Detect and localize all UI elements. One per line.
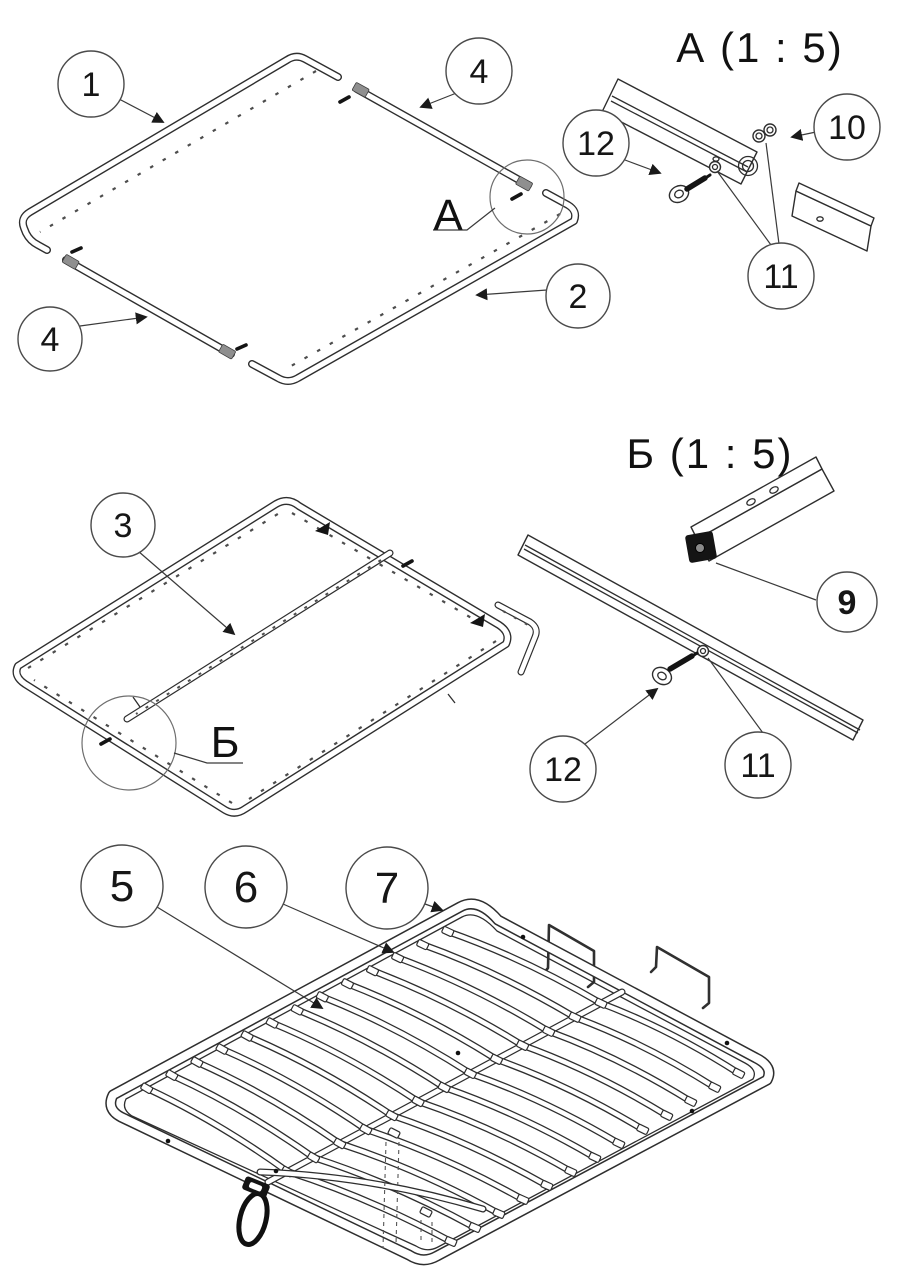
cross-tube-part4-top xyxy=(340,82,533,199)
detail-a-title: А (1 : 5) xyxy=(676,24,843,71)
washer xyxy=(710,162,721,173)
assembly-instruction-page: А А (1 : 5) xyxy=(0,0,900,1280)
callout-balloon-6: 6 xyxy=(205,846,287,928)
detail-b-view: Б (1 : 5) xyxy=(498,430,863,740)
svg-text:7: 7 xyxy=(375,864,399,913)
svg-text:12: 12 xyxy=(577,125,615,163)
ref-dot xyxy=(456,1051,461,1056)
callout-balloon-12-bottom: 12 xyxy=(530,736,596,802)
slat-cap xyxy=(612,1138,625,1149)
callout-balloon-4-bottom: 4 xyxy=(18,307,82,371)
slatted-base xyxy=(111,904,769,1260)
callout-balloon-3: 3 xyxy=(91,493,155,557)
leader-1 xyxy=(119,99,163,122)
slat-cap xyxy=(266,1017,279,1028)
svg-text:9: 9 xyxy=(838,584,857,622)
middle-frame-assembled: Б xyxy=(17,501,508,813)
grub-screw xyxy=(403,561,412,566)
callout-balloon-12-top: 12 xyxy=(563,110,629,176)
callout-balloon-9: 9 xyxy=(817,572,877,632)
slat-cap xyxy=(540,1180,553,1191)
leader-12b xyxy=(585,689,657,744)
svg-text:3: 3 xyxy=(114,507,133,545)
detail-b-circle xyxy=(82,696,176,790)
detail-a-marker-label: А xyxy=(433,191,463,240)
svg-text:11: 11 xyxy=(740,747,775,785)
leader-9 xyxy=(716,563,816,600)
joint-mark xyxy=(133,697,140,707)
washer xyxy=(698,646,709,657)
leader-4b xyxy=(80,317,146,326)
callout-balloon-11-top: 11 xyxy=(748,243,814,309)
svg-text:1: 1 xyxy=(82,66,101,104)
ref-dot xyxy=(274,1169,279,1174)
slat-cap xyxy=(416,939,429,950)
grub-screw xyxy=(340,97,349,102)
svg-text:6: 6 xyxy=(234,863,258,912)
slat-cap xyxy=(636,1124,649,1135)
svg-text:5: 5 xyxy=(110,862,134,911)
slat-cap xyxy=(588,1152,601,1163)
frame-loop xyxy=(17,501,508,813)
svg-text:4: 4 xyxy=(470,53,489,91)
slat-cap xyxy=(316,991,329,1002)
leader-4a xyxy=(421,92,459,107)
svg-text:10: 10 xyxy=(828,109,866,147)
leader-7 xyxy=(425,904,442,910)
slat-cap xyxy=(391,952,404,963)
leader-10 xyxy=(792,132,816,137)
slat-cap xyxy=(564,1166,577,1177)
svg-text:2: 2 xyxy=(569,278,588,316)
detail-b-title: Б (1 : 5) xyxy=(627,430,794,477)
bolt xyxy=(649,653,697,688)
slat-cap xyxy=(140,1083,153,1094)
slat-cap xyxy=(732,1068,745,1079)
cross-tube-part4-bottom xyxy=(62,248,246,359)
slat-cap xyxy=(684,1096,697,1107)
bolt xyxy=(666,175,710,206)
svg-text:4: 4 xyxy=(41,321,60,359)
cable-tie xyxy=(234,1176,272,1248)
ref-dot xyxy=(690,1109,695,1114)
slat-cap xyxy=(516,1194,529,1205)
grub-screw xyxy=(237,345,246,349)
slat-cap xyxy=(441,926,454,937)
slat-cap xyxy=(708,1082,721,1093)
callout-balloon-2: 2 xyxy=(546,264,610,328)
washer-nut-pair xyxy=(753,124,776,142)
mattress-hook xyxy=(651,947,709,1008)
detail-b-marker-label: Б xyxy=(211,718,240,767)
svg-text:11: 11 xyxy=(763,258,798,296)
leader-2 xyxy=(477,290,547,295)
slat-cap xyxy=(660,1110,673,1121)
slat-cap xyxy=(291,1004,304,1015)
svg-text:12: 12 xyxy=(544,751,582,789)
callout-balloon-4-top: 4 xyxy=(446,38,512,104)
grub-screw xyxy=(512,194,521,199)
callout-balloon-7: 7 xyxy=(346,847,428,929)
callout-balloon-1: 1 xyxy=(58,51,124,117)
nut-block xyxy=(792,183,874,251)
callout-balloon-5: 5 xyxy=(81,845,163,927)
frame-half-part2 xyxy=(252,193,575,381)
ref-dot xyxy=(725,1041,730,1046)
slat-cap xyxy=(366,965,379,976)
leader-11a xyxy=(717,171,771,245)
grub-screw xyxy=(101,739,110,744)
leader-11a xyxy=(766,143,779,244)
callout-balloon-10: 10 xyxy=(814,94,880,160)
assembly-drawing: А А (1 : 5) xyxy=(0,0,900,1280)
ref-dot xyxy=(521,935,526,940)
slat-cap xyxy=(241,1030,254,1041)
joint-mark xyxy=(448,694,455,703)
center-bar-section xyxy=(518,535,863,740)
slat-cap xyxy=(341,978,354,989)
leader-12a xyxy=(625,160,660,173)
grub-screw xyxy=(72,248,81,252)
callout-balloon-11-bottom: 11 xyxy=(725,732,791,798)
slat-cap xyxy=(468,1222,481,1233)
ref-dot xyxy=(166,1139,171,1144)
